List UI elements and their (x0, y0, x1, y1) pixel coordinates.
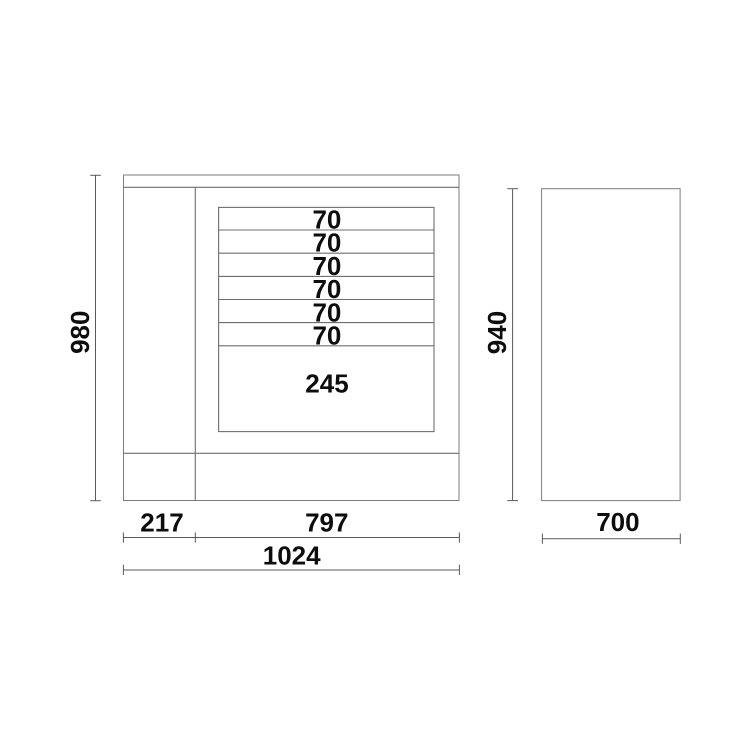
svg-text:1024: 1024 (263, 541, 321, 571)
svg-text:980: 980 (65, 311, 95, 354)
svg-text:245: 245 (305, 369, 348, 399)
svg-text:70: 70 (312, 321, 341, 351)
svg-text:700: 700 (596, 507, 639, 537)
svg-text:940: 940 (482, 311, 512, 354)
svg-text:217: 217 (140, 508, 183, 538)
svg-text:797: 797 (305, 508, 348, 538)
